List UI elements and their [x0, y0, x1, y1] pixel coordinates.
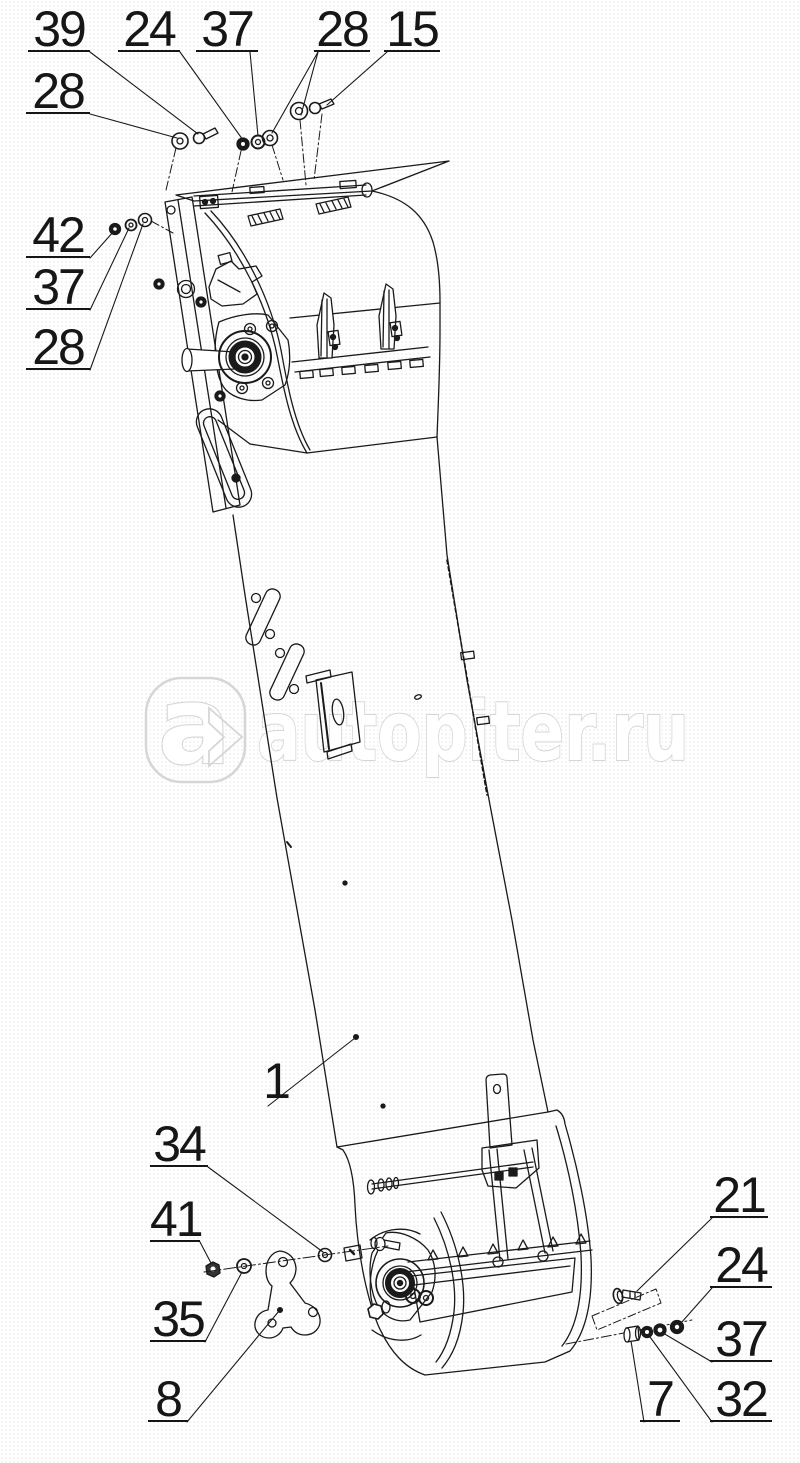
parts-diagram: a autopiter.ru [0, 0, 800, 1463]
cover-plate-8 [255, 1251, 320, 1338]
callout-34: 34 [150, 1121, 208, 1167]
callout-7: 7 [640, 1376, 680, 1422]
callout-28-left: 28 [26, 324, 90, 370]
conveyor-duct [233, 437, 548, 1147]
callout-42: 42 [26, 212, 90, 258]
upper-head-assembly [154, 161, 449, 512]
callout-37-left: 37 [26, 264, 90, 310]
washer-28b [263, 131, 278, 146]
lower-drum-assembly [337, 1074, 592, 1375]
callout-35: 35 [150, 1296, 206, 1342]
fasteners-bottom-right [566, 1288, 692, 1344]
fasteners-left [110, 214, 174, 235]
washer-28c [291, 103, 308, 120]
callout-24-top: 24 [118, 6, 180, 52]
washer-37l [126, 220, 137, 231]
tension-rod [368, 1162, 534, 1194]
washer-28l [139, 214, 152, 227]
callout-28-top: 28 [314, 6, 370, 52]
nut-42 [110, 224, 121, 235]
diagram-canvas: a autopiter.ru [0, 0, 800, 1463]
callout-8: 8 [148, 1376, 188, 1422]
callout-32: 32 [710, 1376, 772, 1422]
bushing-7 [624, 1326, 641, 1342]
washer-32 [642, 1327, 653, 1338]
bolt-39 [194, 128, 219, 144]
nut-41 [206, 1262, 220, 1277]
watermark-logo-letter: a [158, 664, 231, 789]
callout-15: 15 [384, 6, 440, 52]
callout-28-upper: 28 [26, 68, 90, 114]
callout-39: 39 [28, 6, 90, 52]
callout-24-bottom: 24 [710, 1242, 772, 1288]
callout-37-bottom: 37 [710, 1316, 772, 1362]
callout-41: 41 [150, 1196, 200, 1242]
watermark: a autopiter.ru [146, 664, 689, 789]
callout-21: 21 [710, 1172, 768, 1218]
callout-1: 1 [256, 1058, 296, 1104]
washer-28 [172, 133, 188, 149]
bolt-15 [310, 99, 335, 114]
callout-37-top: 37 [196, 6, 258, 52]
elevator-paddle [317, 284, 402, 358]
